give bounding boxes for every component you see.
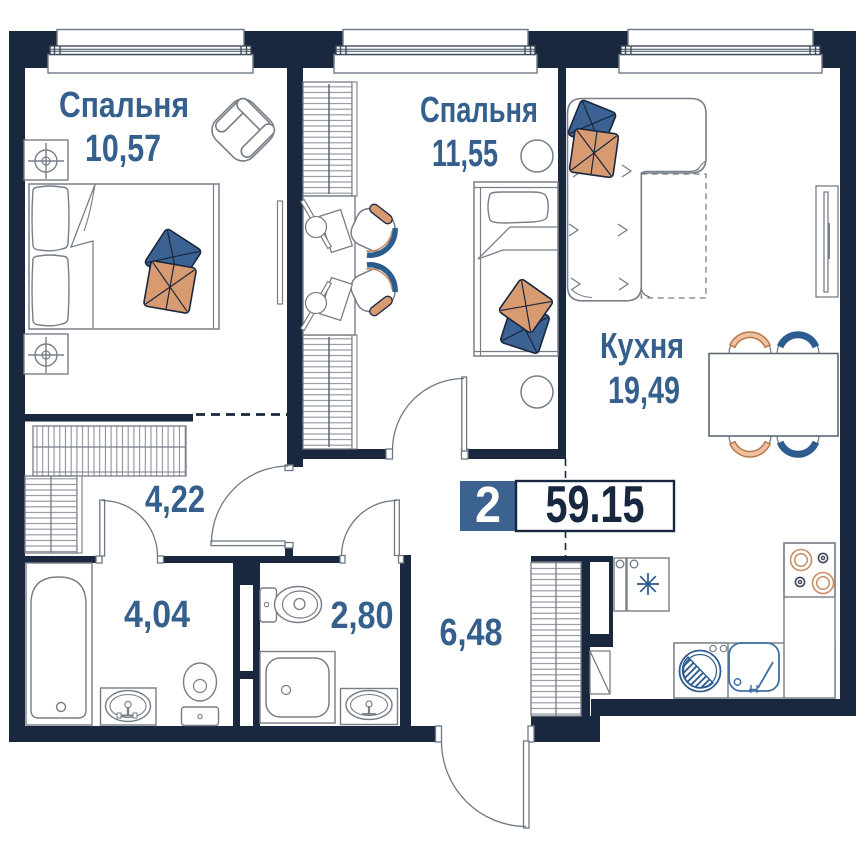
svg-text:2: 2 — [475, 476, 501, 533]
svg-text:Спальня: Спальня — [59, 84, 189, 125]
svg-text:4,22: 4,22 — [145, 479, 205, 521]
svg-text:6,48: 6,48 — [440, 612, 503, 654]
svg-text:2,80: 2,80 — [331, 595, 394, 637]
svg-text:Кухня: Кухня — [600, 325, 684, 366]
svg-text:11,55: 11,55 — [432, 133, 498, 175]
svg-text:10,57: 10,57 — [85, 128, 161, 170]
svg-text:4,04: 4,04 — [124, 594, 190, 636]
svg-text:59.15: 59.15 — [546, 476, 645, 534]
svg-text:Спальня: Спальня — [420, 89, 538, 130]
svg-text:19,49: 19,49 — [608, 370, 680, 412]
